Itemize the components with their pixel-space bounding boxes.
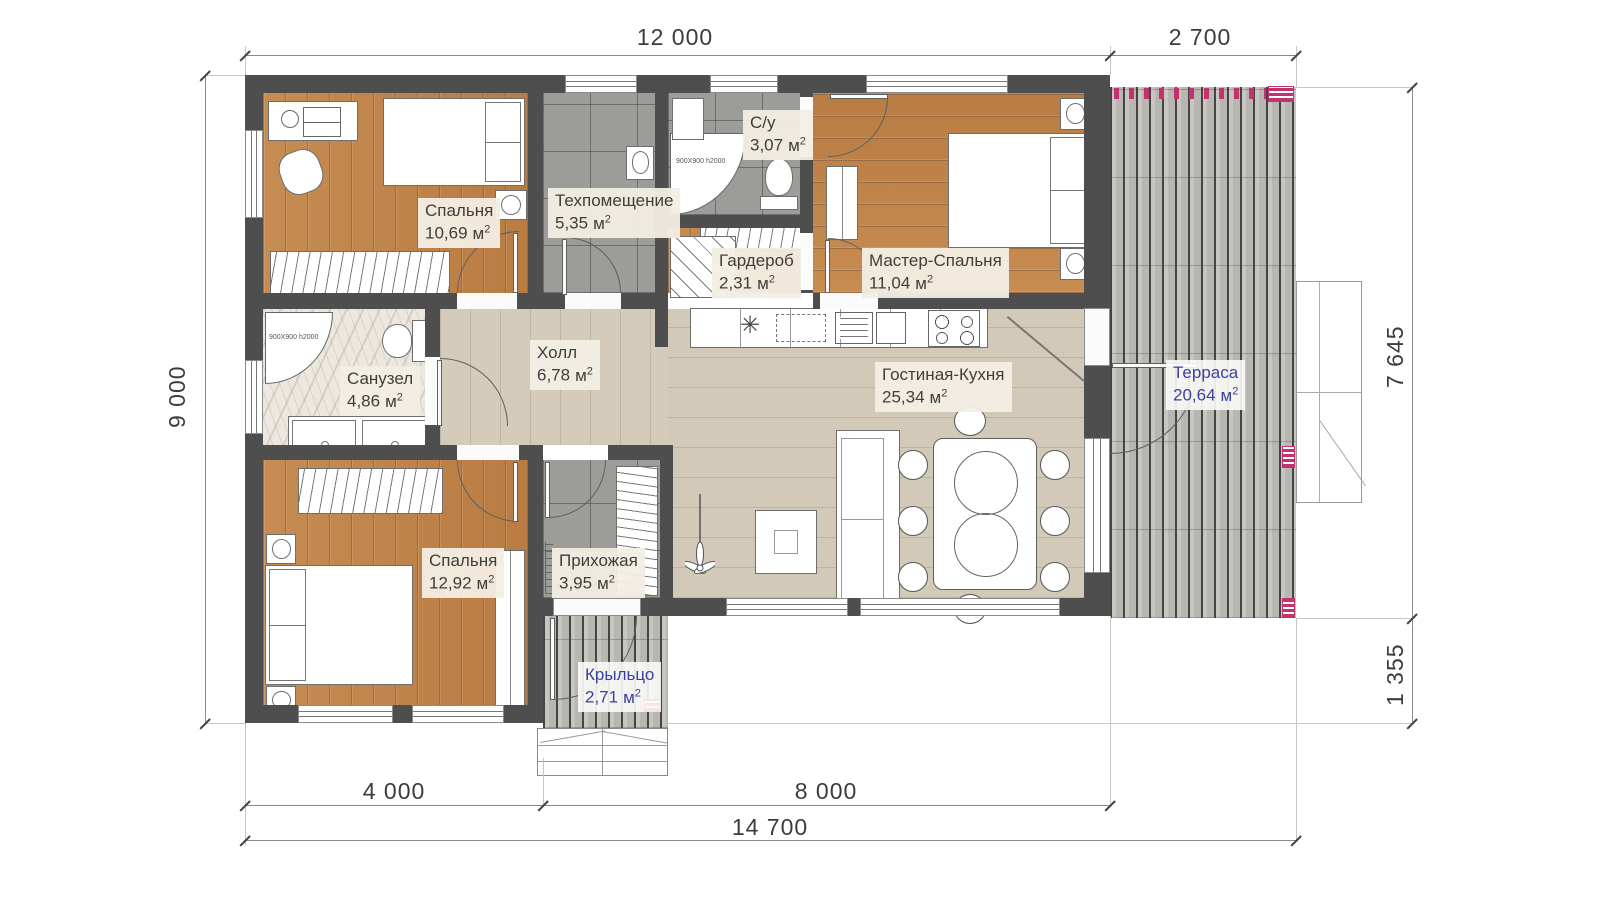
room-label-wardrobe: Гардероб 2,31м2: [712, 248, 801, 298]
room-label-bedroom-1: Спальня 10,69м2: [418, 198, 500, 248]
dining-chair: [898, 506, 928, 536]
dimension-line-bottom-1: [245, 805, 1110, 806]
door-leaf-bedroom-1: [513, 233, 518, 293]
window-bathroom: [245, 360, 263, 434]
door-leaf-entry: [545, 462, 550, 518]
room-label-entry: Прихожая 3,95м2: [552, 548, 645, 598]
door-opening-tech: [565, 293, 621, 309]
shower-size-note-bathroom: 900X900 h2000: [269, 334, 318, 341]
extension-line: [205, 75, 245, 76]
wall-hall-living-stub: [655, 309, 668, 347]
dim-top-house: 12 000: [560, 24, 790, 51]
terrace-post-markers-row: [1114, 88, 1266, 99]
room-label-tech: Техпомещение 5,35м2: [548, 188, 680, 238]
window-bedroom-2-right: [412, 705, 504, 723]
window-wc: [710, 75, 778, 93]
room-label-wc: С/у 3,07м2: [743, 110, 813, 160]
room-label-hall: Холл 6,78м2: [530, 340, 600, 390]
window-tech: [565, 75, 637, 93]
dining-chair: [1040, 506, 1070, 536]
wall-entry-north: [608, 445, 673, 460]
floor-terrace-deck: [1110, 87, 1296, 618]
extension-line: [1296, 87, 1412, 88]
extension-line: [205, 723, 245, 724]
wardrobe-hangers: [270, 251, 450, 297]
toilet-bowl-bathroom: [382, 324, 412, 358]
window-bedroom-2-left: [298, 705, 393, 723]
window-living-terrace: [1084, 438, 1110, 573]
toilet-bowl-wc: [765, 158, 793, 196]
dim-bottom-total: 14 700: [700, 814, 840, 841]
shower-size-note-wc: 900X900 h2000: [676, 158, 725, 165]
extension-line: [1110, 616, 1111, 805]
floor-plan: 900X900 h2000 900X900 h2000 ✳: [0, 0, 1600, 900]
bed-bedroom-2: [265, 565, 413, 685]
door-leaf-entrance: [550, 618, 555, 700]
dim-top-terrace: 2 700: [1120, 24, 1280, 51]
dim-left-side: 9 000: [164, 322, 194, 472]
dimension-line-right: [1412, 87, 1413, 723]
door-leaf-bathroom: [437, 360, 442, 426]
dining-chair: [1040, 450, 1070, 480]
room-label-bathroom: Санузел 4,86м2: [340, 366, 420, 416]
terrace-edge-marker-bottom: [1282, 598, 1295, 618]
ceiling-fan-icon: [685, 492, 715, 598]
extension-line: [668, 723, 1412, 724]
window-living-right: [860, 598, 1060, 616]
dining-chair: [898, 450, 928, 480]
kitchen-sink-icon: ✳: [736, 312, 764, 340]
dresser-master: [826, 166, 858, 240]
oven: [835, 312, 873, 344]
window-master: [866, 75, 1008, 93]
room-label-bedroom-2: Спальня 12,92м2: [422, 548, 504, 598]
wall-entry-living: [660, 445, 673, 598]
door-leaf-bedroom-2: [513, 462, 518, 522]
dim-right-upper: 7 645: [1382, 282, 1412, 432]
door-leaf-master: [830, 94, 888, 99]
bed-master: [948, 133, 1090, 248]
bed-bedroom-1: [383, 98, 525, 186]
tv-stand: [755, 510, 817, 574]
terrace-corner-marker-top: [1268, 86, 1294, 102]
dimension-line-top: [245, 55, 1296, 56]
extension-line: [245, 723, 246, 845]
dishwasher: [776, 314, 826, 342]
wardrobe-hangers-bedroom-2: [298, 468, 443, 514]
wall-bedroom1-tech: [528, 93, 543, 303]
extension-line: [1296, 618, 1297, 840]
extension-line: [1110, 46, 1111, 75]
room-label-porch: Крыльцо 2,71м2: [578, 662, 661, 712]
desk: [268, 101, 358, 141]
cooktop: [928, 310, 980, 347]
wall-wc-wardrobe: [668, 215, 813, 228]
door-opening-wardrobe: [800, 233, 813, 290]
terrace-edge-marker-mid: [1282, 446, 1295, 468]
extension-line: [245, 46, 246, 75]
dining-chair: [898, 562, 928, 592]
dining-table: [933, 438, 1037, 590]
entrance-door-opening: [553, 598, 641, 616]
extension-line: [543, 758, 544, 805]
wall-bedroom2-right: [528, 455, 543, 723]
window-bedroom-1: [245, 130, 263, 218]
nightstand-bedroom-2-top: [266, 534, 296, 564]
terrace-door-opening: [1084, 308, 1110, 366]
door-leaf-wardrobe: [825, 240, 830, 293]
door-opening-bedroom-2: [457, 445, 519, 460]
toilet-tank-bathroom: [412, 320, 426, 362]
sofa: [836, 430, 900, 608]
room-label-terrace: Терраса 20,64м2: [1166, 360, 1245, 410]
dining-chair: [1040, 562, 1070, 592]
door-leaf-tech: [562, 239, 567, 295]
room-label-master: Мастер-Спальня 11,04м2: [862, 248, 1009, 298]
room-label-living: Гостиная-Кухня 25,34м2: [875, 362, 1012, 412]
entrance-steps: [537, 728, 668, 776]
kitchen-module: [876, 312, 906, 344]
dim-right-lower: 1 355: [1382, 615, 1412, 735]
dim-bottom-left: 4 000: [334, 778, 454, 805]
door-opening-bedroom-1: [457, 293, 517, 309]
window-living-left: [726, 598, 848, 616]
toilet-tank-wc: [760, 196, 798, 210]
washing-machine: [626, 146, 654, 180]
washbasin-wc: [672, 98, 704, 140]
exterior-bench: [1296, 281, 1362, 503]
dim-bottom-right: 8 000: [766, 778, 886, 805]
dimension-line-left: [205, 75, 206, 723]
